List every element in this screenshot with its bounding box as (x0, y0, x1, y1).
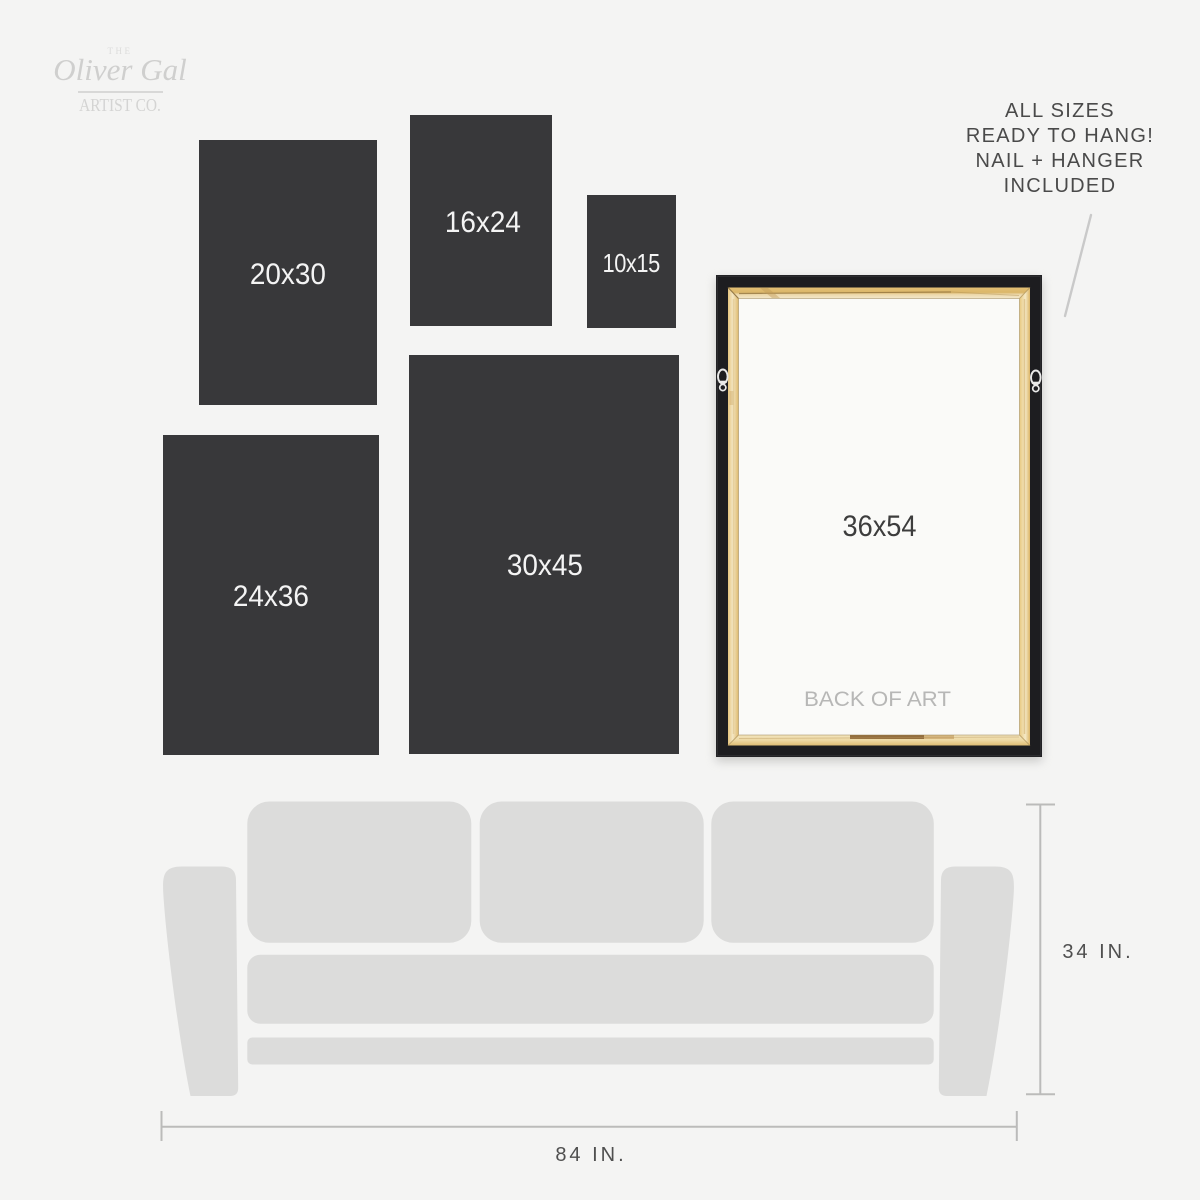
svg-text:BACK OF ART: BACK OF ART (804, 687, 951, 711)
svg-text:36x54: 36x54 (843, 510, 917, 543)
